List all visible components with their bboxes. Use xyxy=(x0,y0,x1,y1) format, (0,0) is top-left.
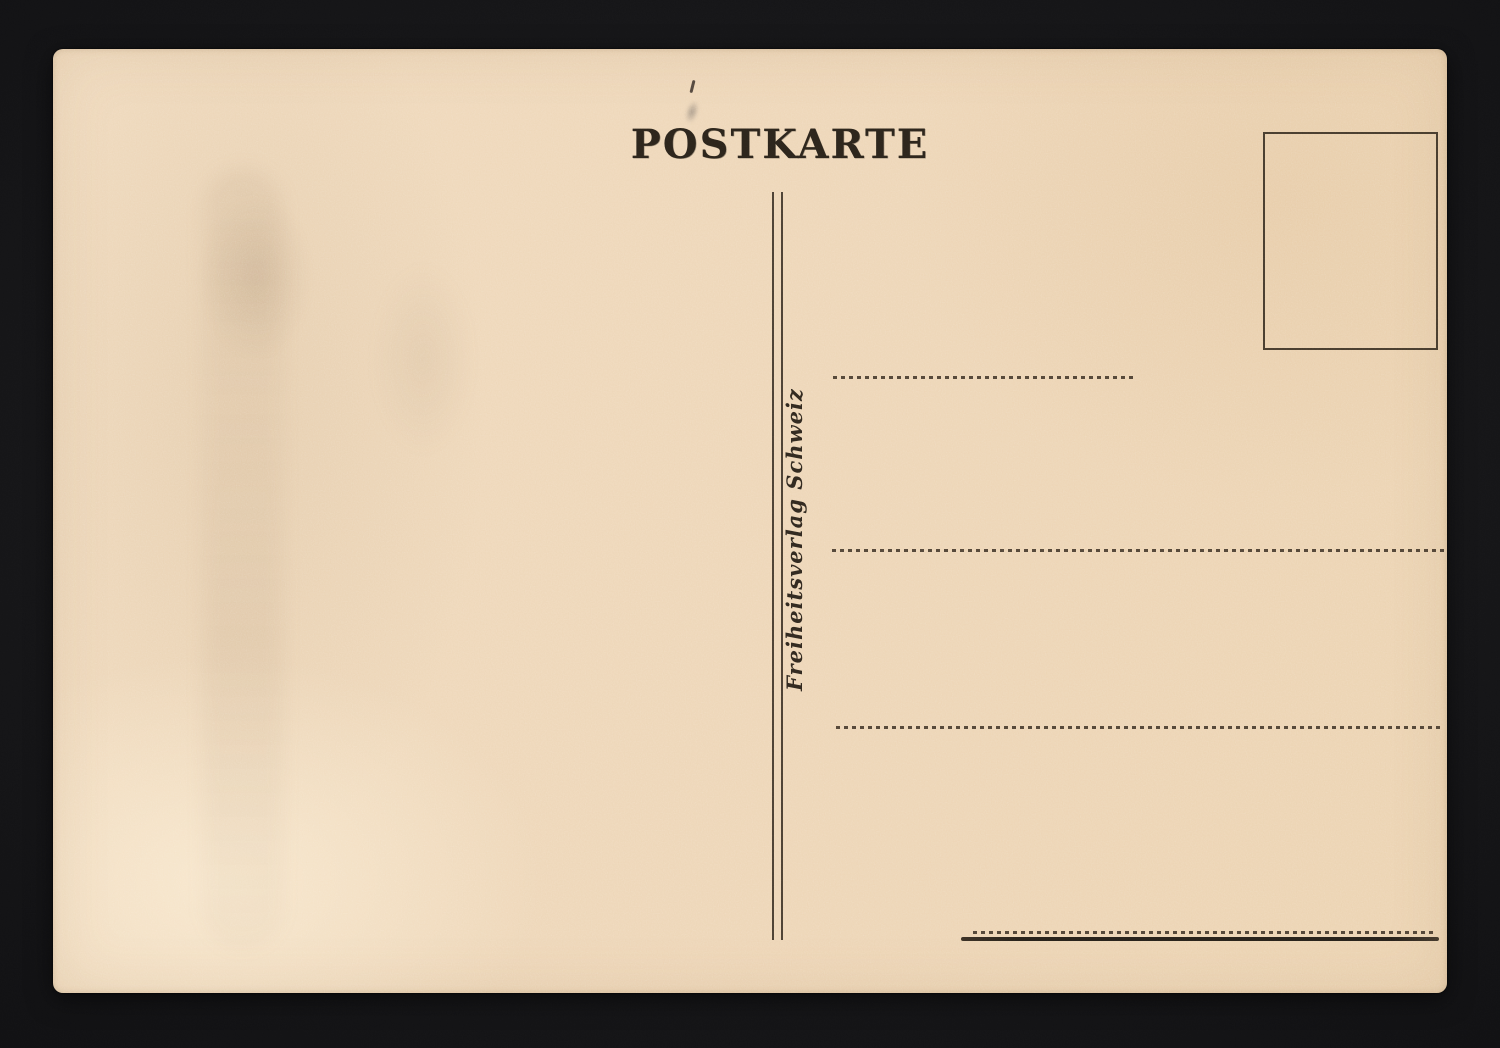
scanner-background: POSTKARTE Freiheitsverlag Schweiz xyxy=(0,0,1500,1048)
show-through-ghosting xyxy=(181,167,331,387)
show-through-ghosting xyxy=(353,229,493,489)
signature-dotted-line xyxy=(973,931,1437,934)
postcard-title: POSTKARTE xyxy=(555,121,1005,168)
postcard: POSTKARTE Freiheitsverlag Schweiz xyxy=(53,49,1447,993)
address-line xyxy=(833,376,1133,379)
stamp-box xyxy=(1263,132,1438,350)
ink-smudge-tick xyxy=(689,80,695,93)
signature-solid-line xyxy=(961,937,1439,941)
address-line xyxy=(832,549,1445,552)
address-line xyxy=(836,726,1442,729)
publisher-imprint: Freiheitsverlag Schweiz xyxy=(782,441,808,691)
